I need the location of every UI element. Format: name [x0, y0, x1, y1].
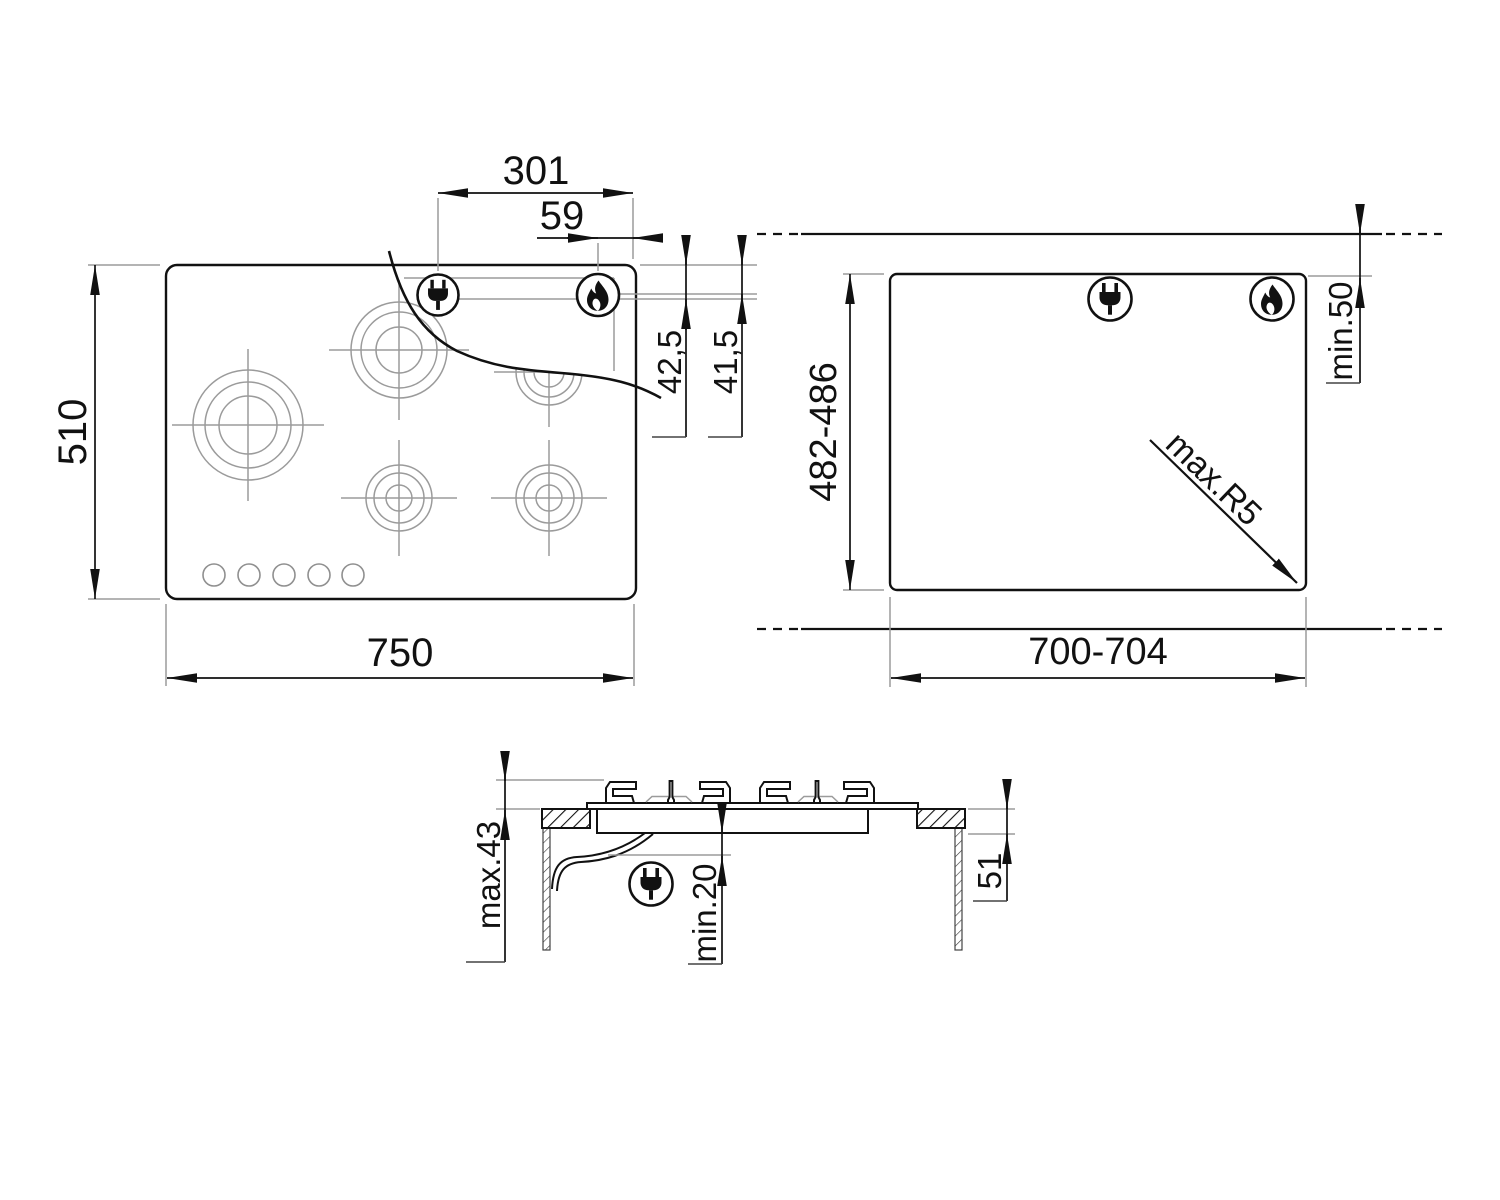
hob-outline	[166, 265, 636, 599]
dim-height-above-label: max.43	[470, 821, 507, 929]
dim-cutout-width: 700-704	[890, 597, 1306, 687]
worktop-section-left	[542, 809, 590, 828]
dim-plug-rear: 42,5	[651, 240, 688, 437]
dim-flame-rear: 41,5	[707, 240, 744, 437]
dim-cutout-depth-label: 482-486	[803, 362, 845, 501]
dim-flame-offset-label: 59	[540, 194, 585, 238]
technical-drawing-page: 301 59 42,5 41,5	[0, 0, 1500, 1200]
plug-icon	[418, 275, 459, 316]
flame-icon	[1251, 278, 1294, 321]
dim-built-in-depth: 51	[968, 790, 1015, 901]
dim-rear-clearance: min.50	[1308, 216, 1372, 383]
dim-flame-rear-label: 41,5	[707, 330, 744, 394]
plug-icon	[1089, 278, 1132, 321]
hob-body-section	[597, 809, 868, 833]
worktop-cut-face-left	[543, 828, 550, 950]
dim-cutout-depth: 482-486	[803, 274, 884, 590]
plan-view: 301 59 42,5 41,5	[51, 149, 757, 686]
dim-depth: 510	[51, 265, 160, 599]
flame-icon	[577, 274, 619, 316]
dim-plug-offset: 301	[438, 149, 633, 271]
cutout-outline	[890, 274, 1306, 590]
dim-cutout-width-label: 700-704	[1028, 631, 1167, 673]
worktop-cut-face-right	[955, 828, 962, 950]
dim-plug-rear-label: 42,5	[651, 330, 688, 394]
dim-width-label: 750	[367, 631, 434, 675]
plug-icon	[630, 863, 673, 906]
dim-flame-offset: 59	[537, 194, 657, 271]
dim-built-in-depth-label: 51	[971, 853, 1008, 890]
cutout-view: 482-486 700-704 min.50 max.R5	[757, 216, 1442, 687]
worktop-section-right	[917, 809, 965, 828]
dim-width: 750	[166, 604, 634, 686]
dim-depth-label: 510	[51, 399, 95, 466]
pan-support-grates	[606, 781, 874, 803]
dim-rear-clearance-label: min.50	[1322, 281, 1359, 380]
hob-installation-diagram: 301 59 42,5 41,5	[0, 0, 1500, 1200]
dim-clearance-below-label: min.20	[686, 863, 723, 962]
section-view: max.43 min.20 51	[466, 763, 1015, 964]
dim-plug-offset-label: 301	[503, 149, 570, 193]
